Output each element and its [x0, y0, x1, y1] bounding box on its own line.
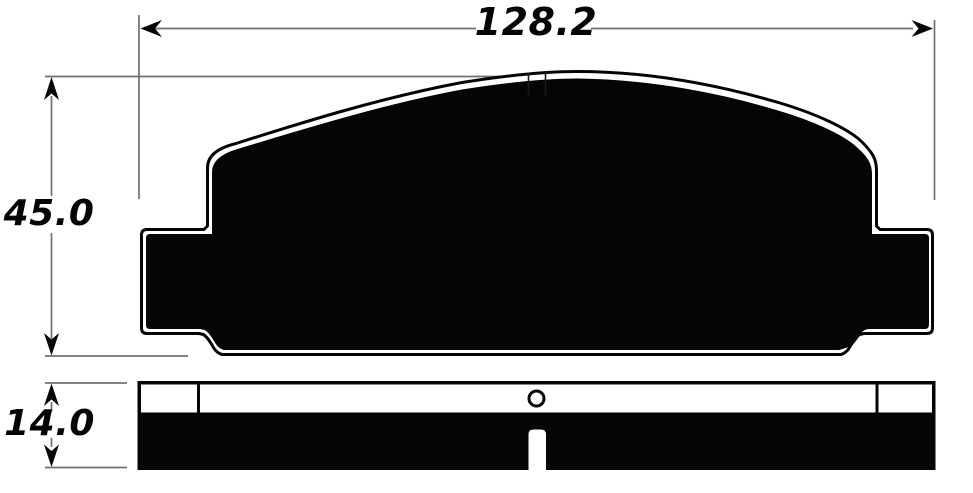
technical-drawing-canvas: 128.2 45.0 14.0 — [0, 0, 973, 493]
drawing-geometry — [0, 0, 973, 493]
side-view-hole — [529, 391, 544, 406]
width-arrow-right-icon — [912, 20, 934, 37]
thickness-dimension-label: 14.0 — [0, 406, 99, 442]
height-dimension-label: 45.0 — [0, 196, 98, 232]
side-view — [139, 383, 934, 472]
thickness-arrow-down-icon — [44, 445, 59, 468]
width-dimension-label: 128.2 — [436, 3, 636, 41]
side-view-center-slot — [529, 430, 547, 473]
